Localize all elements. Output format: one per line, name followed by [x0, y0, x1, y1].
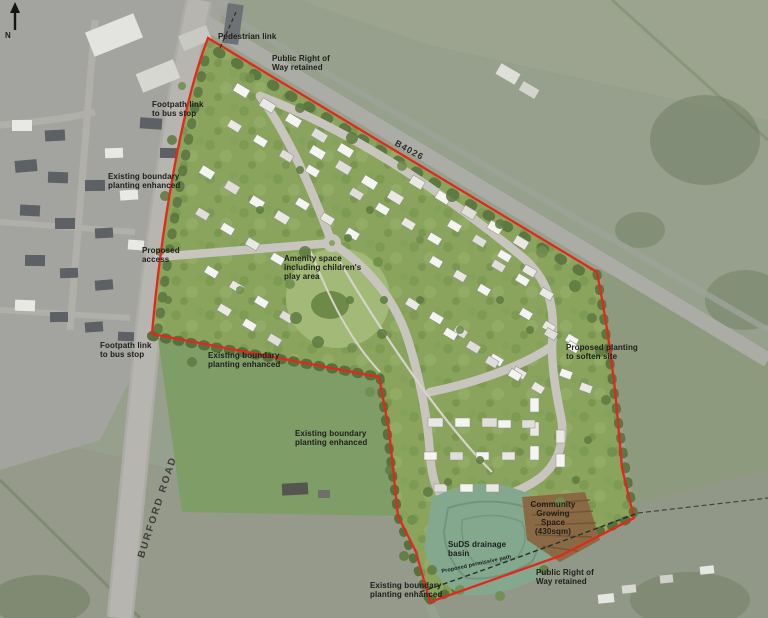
annotation-amenity-space: Amenity space including children's play …	[284, 255, 361, 282]
annotation-prow-retained-bottom: Public Right of Way retained	[536, 569, 594, 587]
annotation-footpath-bus-upper: Footpath link to bus stop	[152, 101, 204, 119]
annotation-footpath-bus-lower: Footpath link to bus stop	[100, 342, 152, 360]
annotation-boundary-planting-south: Existing boundary planting enhanced	[370, 582, 442, 600]
annotation-boundary-planting-west: Existing boundary planting enhanced	[108, 173, 180, 191]
road-label-burford-road: BURFORD ROAD	[136, 455, 179, 559]
annotation-proposed-access: Proposed access	[142, 247, 180, 265]
annotation-community-growing: Community Growing Space (430sqm)	[524, 501, 582, 537]
annotation-pedestrian-link: Pedestrian link	[218, 33, 276, 42]
annotation-layer: Pedestrian link Public Right of Way reta…	[0, 0, 768, 618]
annotation-prow-retained-top: Public Right of Way retained	[272, 55, 330, 73]
annotation-boundary-planting-north-pitch: Existing boundary planting enhanced	[208, 352, 280, 370]
masterplan-canvas: N Pedestrian link Public Right of Way re…	[0, 0, 768, 618]
annotation-boundary-planting-east-pitch: Existing boundary planting enhanced	[295, 430, 367, 448]
annotation-proposed-planting-east: Proposed planting to soften site	[566, 344, 638, 362]
road-label-b4026: B4026	[393, 138, 425, 162]
